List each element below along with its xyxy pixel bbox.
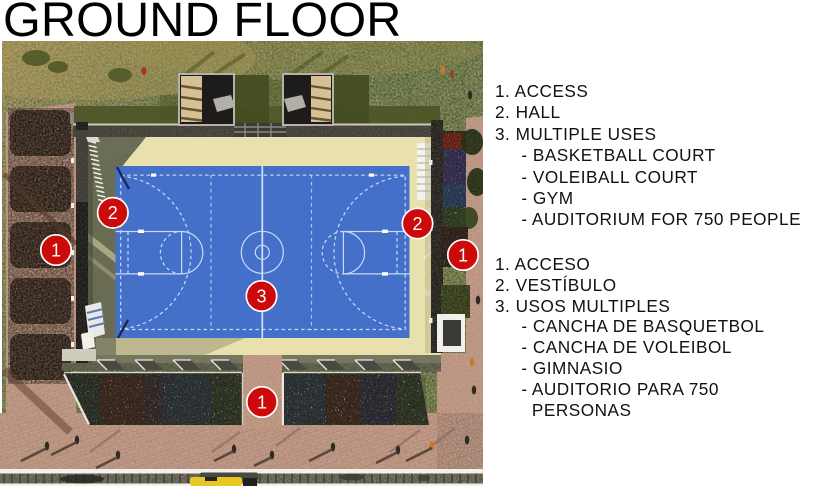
svg-text:1: 1 xyxy=(257,392,267,412)
svg-text:3: 3 xyxy=(256,286,266,306)
svg-text:1: 1 xyxy=(51,240,61,260)
svg-text:1: 1 xyxy=(458,245,468,265)
svg-text:2: 2 xyxy=(108,203,118,223)
svg-text:2: 2 xyxy=(412,214,422,234)
